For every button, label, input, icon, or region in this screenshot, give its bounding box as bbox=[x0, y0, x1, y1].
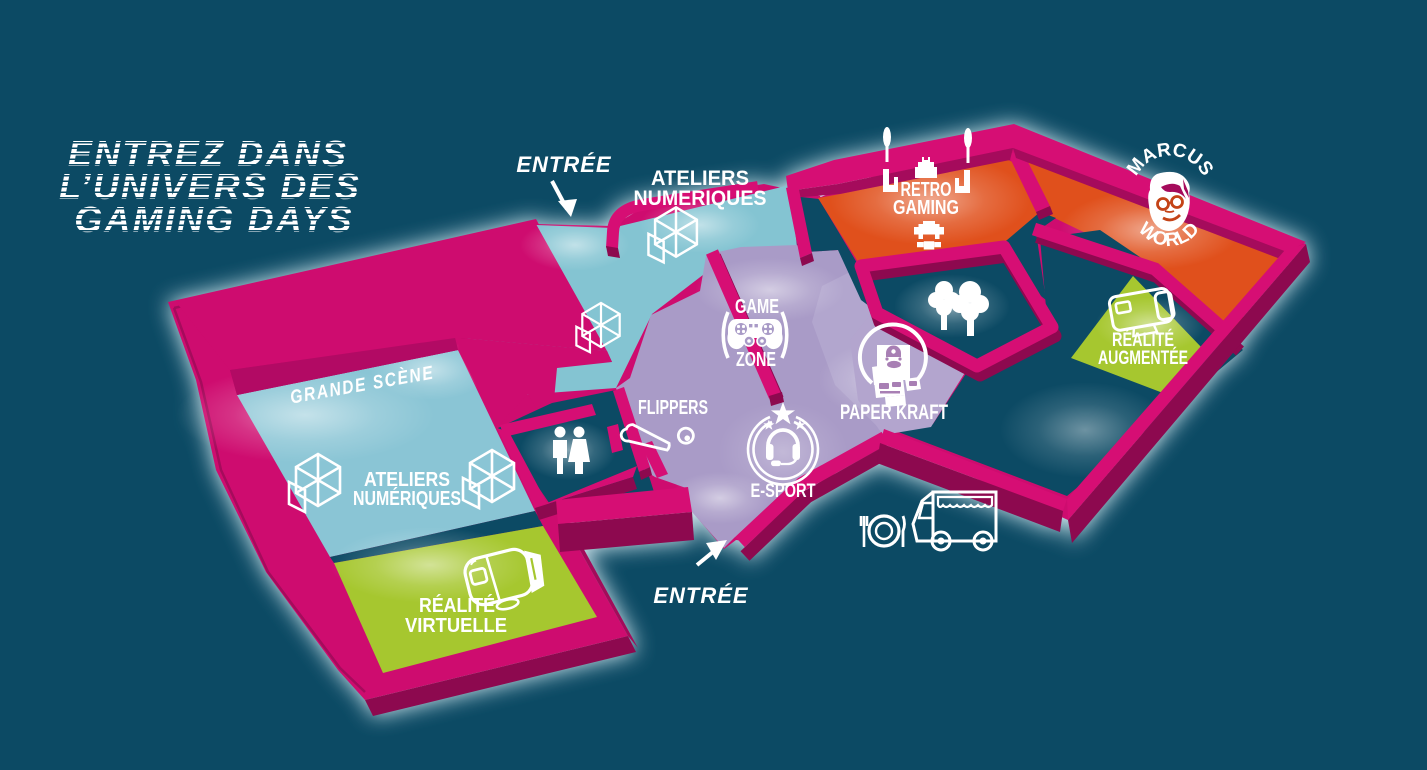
svg-text:GAMING DAYS: GAMING DAYS bbox=[74, 199, 354, 240]
svg-text:ENTRÉE: ENTRÉE bbox=[653, 583, 749, 608]
svg-text:ZONE: ZONE bbox=[736, 349, 776, 371]
svg-text:GAMING: GAMING bbox=[893, 197, 959, 219]
svg-text:GAME: GAME bbox=[735, 296, 779, 318]
svg-text:NUMÉRIQUES: NUMÉRIQUES bbox=[353, 487, 461, 510]
svg-text:PAPER KRAFT: PAPER KRAFT bbox=[840, 401, 948, 424]
svg-text:VIRTUELLE: VIRTUELLE bbox=[405, 615, 507, 637]
svg-text:ENTRÉE: ENTRÉE bbox=[516, 152, 612, 177]
svg-text:FLIPPERS: FLIPPERS bbox=[638, 397, 708, 419]
svg-text:E-SPORT: E-SPORT bbox=[751, 481, 816, 502]
svg-text:AUGMENTÉE: AUGMENTÉE bbox=[1098, 347, 1188, 369]
svg-text:NUMERIQUES: NUMERIQUES bbox=[634, 187, 767, 210]
svg-text:RÉALITÉ: RÉALITÉ bbox=[419, 594, 495, 617]
